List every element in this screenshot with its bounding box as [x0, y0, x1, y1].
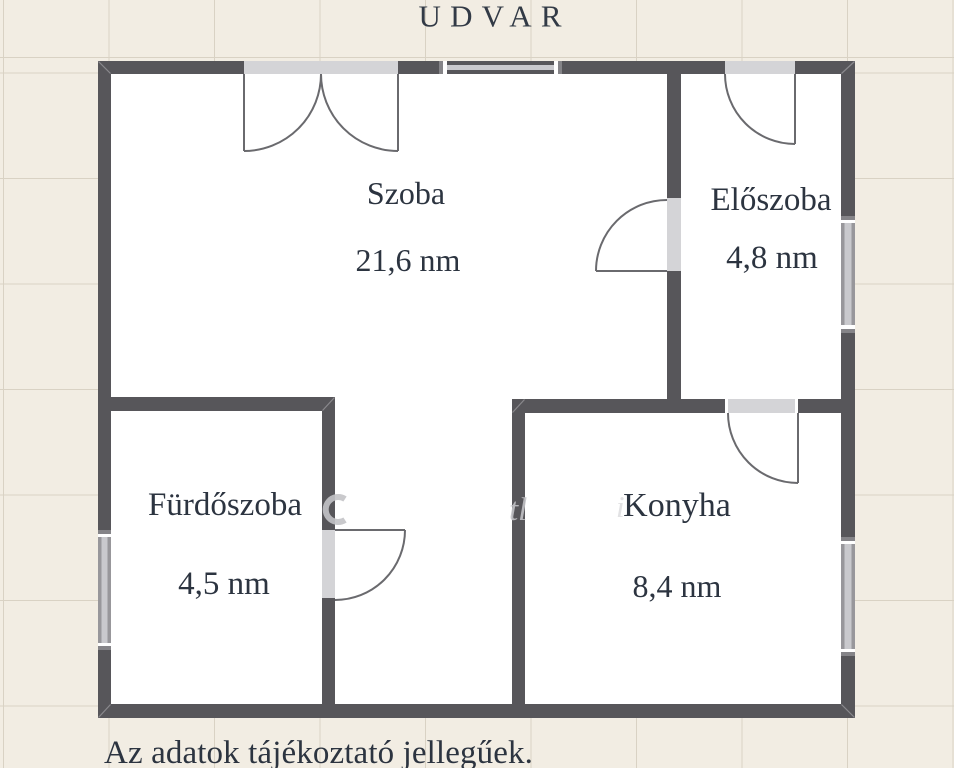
- svg-text:Fürdőszoba: Fürdőszoba: [148, 487, 302, 523]
- svg-text:Előszoba: Előszoba: [711, 182, 832, 218]
- svg-text:4,5 nm: 4,5 nm: [178, 566, 270, 602]
- svg-text:21,6 nm: 21,6 nm: [356, 242, 461, 278]
- svg-text:4,8 nm: 4,8 nm: [726, 240, 818, 276]
- svg-text:tl: tl: [509, 492, 527, 528]
- svg-text:UDVAR: UDVAR: [419, 0, 571, 34]
- svg-text:Konyha: Konyha: [623, 487, 731, 524]
- svg-text:8,4 nm: 8,4 nm: [633, 568, 722, 604]
- svg-text:Szoba: Szoba: [367, 175, 445, 211]
- svg-text:Az adatok tájékoztató jellegűe: Az adatok tájékoztató jellegűek.: [104, 735, 533, 768]
